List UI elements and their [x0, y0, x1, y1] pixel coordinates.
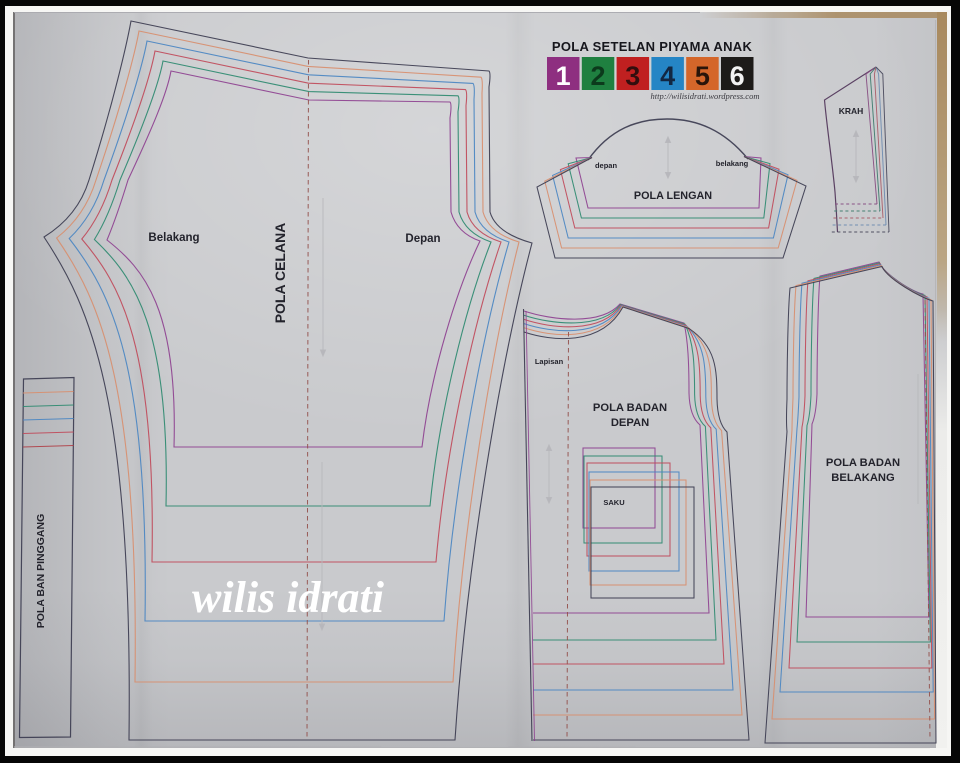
svg-text:6: 6: [730, 61, 745, 91]
svg-text:4: 4: [660, 61, 675, 91]
svg-text:SAKU: SAKU: [603, 498, 624, 507]
svg-text:5: 5: [695, 61, 710, 91]
svg-text:POLA LENGAN: POLA LENGAN: [634, 190, 712, 202]
svg-text:Depan: Depan: [405, 233, 440, 245]
svg-text:KRAH: KRAH: [839, 106, 864, 116]
svg-text:1: 1: [556, 61, 571, 91]
svg-text:DEPAN: DEPAN: [611, 417, 649, 429]
svg-text:http://wilisidrati.wordpress.c: http://wilisidrati.wordpress.com: [651, 91, 760, 101]
svg-text:POLA CELANA: POLA CELANA: [272, 223, 288, 324]
svg-text:BELAKANG: BELAKANG: [831, 472, 895, 484]
svg-text:Belakang: Belakang: [148, 232, 199, 244]
svg-text:POLA BADAN: POLA BADAN: [593, 402, 667, 414]
svg-text:belakang: belakang: [716, 159, 749, 168]
svg-text:Lapisan: Lapisan: [535, 357, 564, 366]
svg-text:wilis idrati: wilis idrati: [192, 573, 385, 622]
svg-text:POLA SETELAN PIYAMA ANAK: POLA SETELAN PIYAMA ANAK: [552, 39, 753, 54]
svg-text:POLA BADAN: POLA BADAN: [826, 457, 900, 469]
svg-text:depan: depan: [595, 161, 618, 170]
svg-text:2: 2: [590, 61, 605, 91]
svg-text:3: 3: [625, 61, 640, 91]
svg-text:POLA BAN PINGGANG: POLA BAN PINGGANG: [35, 514, 47, 629]
